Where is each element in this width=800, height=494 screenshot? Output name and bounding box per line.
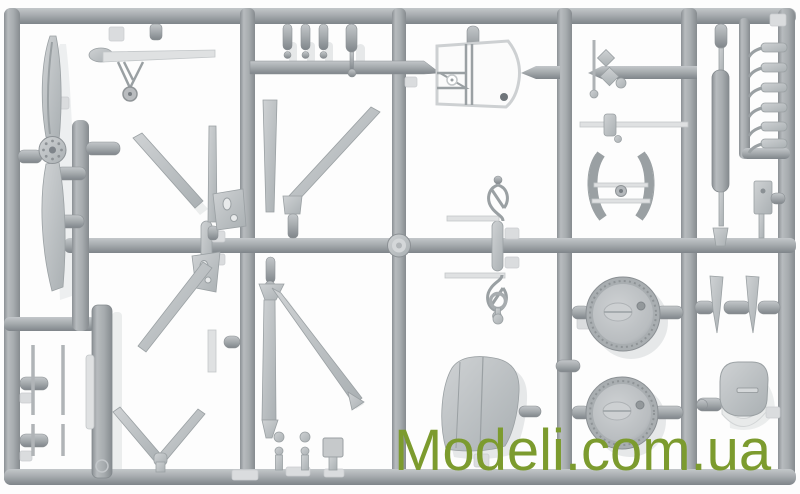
exhaust-cylinder-part <box>712 24 729 246</box>
upper-left-struts <box>133 126 246 230</box>
tail-skid-part <box>89 24 215 101</box>
center-upper-struts <box>263 100 380 238</box>
ball-joint-posts <box>274 432 343 470</box>
wheel-part-1 <box>586 277 660 351</box>
cockpit-frame-part <box>437 26 520 107</box>
axle-rod-part <box>580 114 688 143</box>
cabane-arc-parts <box>588 154 654 218</box>
sprue-photo: Modeli.com.ua <box>0 0 800 494</box>
center-lower-struts <box>259 284 364 438</box>
engine-cowling-part <box>697 362 769 427</box>
watermark-text: Modeli.com.ua <box>394 422 771 480</box>
lower-left-struts <box>113 252 220 472</box>
